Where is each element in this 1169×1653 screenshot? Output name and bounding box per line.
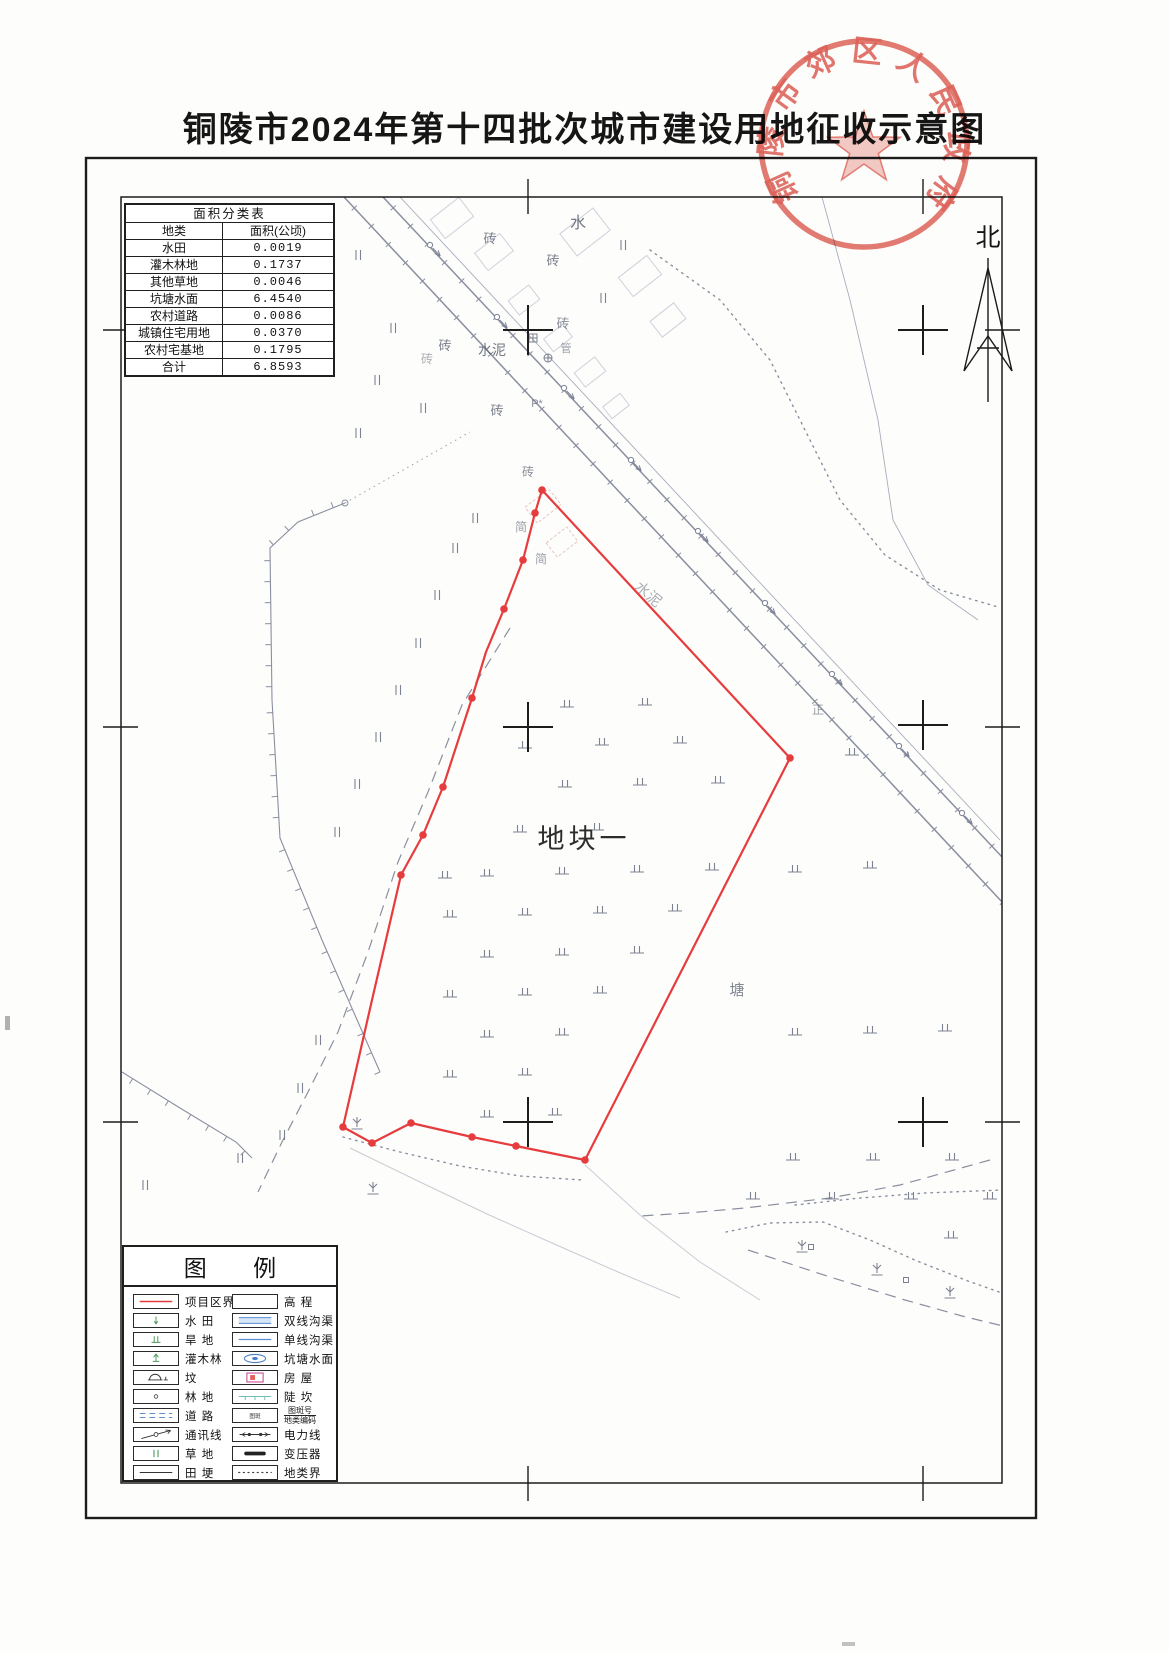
land-type-cell: 农村宅基地 — [125, 342, 223, 359]
legend-item-shrub: 灌木林 — [124, 1349, 230, 1368]
grass-symbol — [375, 375, 380, 385]
grass-symbol — [621, 240, 626, 250]
grid-cross — [503, 305, 553, 355]
boundary-vertex-dot — [419, 831, 427, 839]
legend-item-road: 道 路 — [124, 1406, 230, 1425]
area-value-cell: 6.8593 — [223, 359, 335, 377]
area-value-cell: 0.0019 — [223, 240, 335, 257]
boundary-vertex-dot — [468, 694, 476, 702]
dryland-symbol — [866, 1153, 880, 1160]
power-line-glyph — [695, 528, 708, 542]
power-line-icon — [233, 1428, 277, 1441]
shrub-symbol — [945, 1286, 956, 1298]
dryland-symbol — [560, 700, 574, 707]
paddy-icon — [134, 1314, 178, 1327]
legend-item-transformer: 变压器 — [230, 1444, 336, 1463]
grid-cross — [898, 305, 948, 355]
dryland-symbol — [845, 748, 859, 755]
legend-symbol-box: 图斑 — [232, 1408, 278, 1423]
grass-symbol — [421, 403, 426, 413]
map-line — [343, 1137, 583, 1180]
grave-icon — [134, 1371, 178, 1384]
dryland-symbol — [944, 1231, 958, 1238]
dryland-symbol — [633, 778, 647, 785]
legend-symbol-box — [232, 1351, 278, 1366]
double-ditch-icon — [233, 1314, 277, 1327]
legend-symbol-box — [133, 1427, 179, 1442]
building-outline — [508, 285, 540, 315]
shrub-symbol — [797, 1240, 808, 1252]
area-value-cell: 6.4540 — [223, 291, 335, 308]
boundary-vertex-dot — [339, 1123, 347, 1131]
map-label: 管 — [561, 341, 572, 355]
legend-item-label: 图斑号地类编码 — [284, 1406, 316, 1425]
dryland-symbol — [668, 904, 682, 911]
map-line — [350, 1148, 680, 1298]
ridge-icon — [134, 1466, 178, 1479]
legend-item-label: 灌木林 — [185, 1351, 223, 1367]
legend-symbol-box — [133, 1446, 179, 1461]
dryland-symbol — [518, 741, 532, 748]
area-table-row: 坑塘水面6.4540 — [125, 291, 334, 308]
map-label: 砖 — [546, 253, 559, 268]
power-line-glyph — [561, 385, 574, 399]
legend-symbol-box — [232, 1427, 278, 1442]
grid-cross — [898, 700, 948, 750]
legend-symbol-box — [133, 1351, 179, 1366]
dryland-symbol — [863, 1026, 877, 1033]
legend-item-label: 田 埂 — [185, 1465, 214, 1481]
legend-symbol-box — [133, 1389, 179, 1404]
map-line — [748, 1250, 1003, 1326]
scarp-icon — [233, 1390, 277, 1403]
grid-cross — [503, 702, 553, 752]
boundary-vertex-dot — [581, 1156, 589, 1164]
grass-symbol — [355, 779, 360, 789]
boundary-icon — [233, 1466, 277, 1479]
map-label: 砖 — [490, 403, 503, 418]
legend-symbol-box — [133, 1370, 179, 1385]
single-ditch-icon — [233, 1333, 277, 1346]
grass-symbol — [396, 685, 401, 695]
grass-symbol — [376, 732, 381, 742]
spot-number-icon: 图斑 — [233, 1409, 277, 1422]
dryland-symbol — [555, 867, 569, 874]
legend-symbol-box — [232, 1389, 278, 1404]
dryland-symbol — [788, 865, 802, 872]
land-type-cell: 城镇住宅用地 — [125, 325, 223, 342]
map-line — [795, 1190, 1002, 1205]
seal-star — [828, 111, 900, 180]
dryland-symbol — [480, 1110, 494, 1117]
map-label: 砖 — [522, 464, 534, 479]
legend-item-label: 坟 — [185, 1370, 198, 1386]
transformer-icon — [233, 1447, 277, 1460]
legend-item-label: 道 路 — [185, 1408, 214, 1424]
forest-icon — [134, 1390, 178, 1403]
legend-item-label: 通讯线 — [185, 1427, 223, 1443]
legend-item-label: 双线沟渠 — [284, 1313, 334, 1329]
area-table-row: 农村道路0.0086 — [125, 308, 334, 325]
power-line-glyph — [494, 314, 507, 328]
dryland-symbol — [673, 736, 687, 743]
legend-item-boundary: 地类界 — [230, 1463, 336, 1482]
dryland-symbol — [593, 906, 607, 913]
grass-symbol — [435, 590, 440, 600]
dryland-icon — [134, 1333, 178, 1346]
house-icon — [233, 1371, 277, 1384]
dryland-symbol — [945, 1153, 959, 1160]
grass-symbol — [416, 638, 421, 648]
pond-icon — [233, 1352, 277, 1365]
power-line-glyph — [896, 743, 909, 757]
dryland-symbol — [638, 698, 652, 705]
legend-item-single-ditch: 单线沟渠 — [230, 1330, 336, 1349]
legend-item-power-line: 电力线 — [230, 1425, 336, 1444]
area-value-cell: 0.1737 — [223, 257, 335, 274]
grass-symbol — [356, 428, 361, 438]
legend-box: 图 例 项目区界线水 田旱 地灌木林坟林 地道 路通讯线草 地田 埂 高 程双线… — [122, 1245, 338, 1482]
power-line-glyph — [829, 671, 842, 685]
grid-cross — [898, 1097, 948, 1147]
area-value-cell: 0.0046 — [223, 274, 335, 291]
legend-title: 图 例 — [124, 1247, 336, 1287]
legend-item-grass: 草 地 — [124, 1444, 230, 1463]
dryland-symbol — [438, 871, 452, 878]
legend-item-label: 草 地 — [185, 1446, 214, 1462]
dryland-symbol — [480, 869, 494, 876]
map-line — [640, 1160, 990, 1216]
legend-item-label: 单线沟渠 — [284, 1332, 334, 1348]
boundary-vertex-dot — [786, 754, 794, 762]
map-label: 砖 — [438, 338, 451, 353]
shrub-icon — [134, 1352, 178, 1365]
area-value-cell: 0.0086 — [223, 308, 335, 325]
elevation-icon — [233, 1295, 277, 1308]
dryland-symbol — [558, 780, 572, 787]
area-table-body: 面积分类表地类面积(公顷)水田0.0019灌木林地0.1737其他草地0.004… — [125, 204, 334, 376]
shrub-symbol — [352, 1117, 363, 1129]
dryland-symbol — [593, 986, 607, 993]
legend-symbol-box — [133, 1313, 179, 1328]
dryland-symbol — [786, 1153, 800, 1160]
shrub-symbol — [872, 1263, 883, 1275]
dryland-symbol — [518, 988, 532, 995]
boundary-vertex-dot — [519, 556, 527, 564]
dryland-symbol — [518, 908, 532, 915]
dryland-symbol — [630, 865, 644, 872]
boundary-vertex-dot — [397, 871, 405, 879]
boundary-vertex-dot — [500, 605, 508, 613]
map-line — [585, 1165, 760, 1300]
dryland-symbol — [443, 990, 457, 997]
legend-symbol-box — [133, 1465, 179, 1480]
road-icon — [134, 1409, 178, 1422]
grid-cross — [503, 1097, 553, 1147]
legend-item-label: 陡 坎 — [284, 1389, 313, 1405]
area-table-row: 其他草地0.0046 — [125, 274, 334, 291]
legend-item-label: 水 田 — [185, 1313, 214, 1329]
area-table-row: 城镇住宅用地0.0370 — [125, 325, 334, 342]
legend-symbol-box — [133, 1408, 179, 1423]
area-table-row: 合计6.8593 — [125, 359, 334, 377]
land-type-cell: 坑塘水面 — [125, 291, 223, 308]
map-line — [345, 432, 470, 503]
power-line-glyph — [762, 600, 775, 614]
legend-item-house: 房 屋 — [230, 1368, 336, 1387]
power-line-glyph — [427, 242, 440, 256]
area-table-row: 水田0.0019 — [125, 240, 334, 257]
grass-symbol — [316, 1035, 321, 1045]
dryland-symbol — [983, 1192, 997, 1199]
dryland-symbol — [746, 1192, 760, 1199]
map-line — [726, 1222, 1002, 1293]
legend-item-dryland: 旱 地 — [124, 1330, 230, 1349]
legend-symbol-box — [232, 1465, 278, 1480]
area-table: 面积分类表地类面积(公顷)水田0.0019灌木林地0.1737其他草地0.004… — [124, 203, 335, 377]
dryland-symbol — [904, 1192, 918, 1199]
area-table-row: 灌木林地0.1737 — [125, 257, 334, 274]
dryland-symbol — [443, 910, 457, 917]
dryland-symbol — [630, 946, 644, 953]
building-outline — [618, 255, 661, 296]
plot-label: 地块一 — [538, 824, 631, 854]
map-label: 砖 — [421, 351, 433, 366]
legend-symbol-box — [232, 1332, 278, 1347]
legend-symbol-box — [232, 1370, 278, 1385]
boundary-vertex-dot — [512, 1142, 520, 1150]
legend-item-label: 变压器 — [284, 1446, 322, 1462]
project-boundary-icon — [134, 1295, 178, 1308]
square-symbol — [809, 1245, 814, 1250]
map-line — [122, 1072, 252, 1158]
dryland-symbol — [555, 1028, 569, 1035]
legend-item-label: 地类界 — [284, 1465, 322, 1481]
area-table-header: 面积(公顷) — [223, 223, 335, 240]
grass-symbol — [601, 293, 606, 303]
legend-item-label: 林 地 — [185, 1389, 214, 1405]
dryland-symbol — [863, 861, 877, 868]
grass-icon — [134, 1447, 178, 1460]
land-type-cell: 水田 — [125, 240, 223, 257]
map-line — [383, 197, 1003, 858]
map-label: 正 — [812, 703, 824, 717]
dryland-symbol — [705, 863, 719, 870]
legend-symbol-box — [232, 1294, 278, 1309]
legend-symbol-box — [232, 1313, 278, 1328]
legend-item-label: 高 程 — [284, 1294, 313, 1310]
map-line — [650, 250, 998, 607]
dryland-symbol — [938, 1024, 952, 1031]
boundary-vertex-dot — [538, 486, 546, 494]
legend-item-double-ditch: 双线沟渠 — [230, 1311, 336, 1330]
dryland-symbol — [518, 1068, 532, 1075]
legend-item-label: 坑塘水面 — [284, 1351, 334, 1367]
legend-right-column: 高 程双线沟渠单线沟渠坑塘水面房 屋陡 坎图斑图斑号地类编码电力线变压器地类界 — [230, 1292, 336, 1482]
dryland-symbol — [711, 776, 725, 783]
building-outline — [430, 197, 473, 238]
map-label: 塘 — [729, 982, 744, 999]
land-type-cell: 农村道路 — [125, 308, 223, 325]
building-outline — [650, 303, 686, 337]
map-label: 简 — [515, 520, 527, 534]
map-label: 简 — [535, 552, 547, 566]
power-line-glyph — [628, 457, 641, 471]
legend-item-label: 旱 地 — [185, 1332, 214, 1348]
area-table-row: 农村宅基地0.1795 — [125, 342, 334, 359]
map-label: 水 — [570, 214, 586, 232]
legend-item-label: 电力线 — [284, 1427, 322, 1443]
power-line-glyph — [959, 810, 972, 824]
shed-outline — [546, 527, 578, 557]
map-line — [270, 503, 380, 1072]
legend-symbol-box — [133, 1294, 179, 1309]
legend-item-telecom: 通讯线 — [124, 1425, 230, 1444]
grass-symbol — [298, 1083, 303, 1093]
land-type-cell: 其他草地 — [125, 274, 223, 291]
legend-item-elevation: 高 程 — [230, 1292, 336, 1311]
map-label: 水泥 — [478, 342, 506, 358]
legend-item-pond: 坑塘水面 — [230, 1349, 336, 1368]
grass-symbol — [143, 1180, 148, 1190]
telecom-icon — [134, 1428, 178, 1441]
legend-symbol-box — [133, 1332, 179, 1347]
legend-item-forest: 林 地 — [124, 1387, 230, 1406]
area-value-cell: 0.1795 — [223, 342, 335, 359]
dryland-symbol — [788, 1028, 802, 1035]
scan-artifact — [842, 1642, 855, 1646]
area-table-header: 地类 — [125, 223, 223, 240]
grass-symbol — [335, 827, 340, 837]
area-value-cell: 0.0370 — [223, 325, 335, 342]
building-outline — [574, 357, 606, 387]
map-line — [822, 197, 978, 620]
dryland-symbol — [443, 1070, 457, 1077]
dryland-symbol — [548, 1108, 562, 1115]
government-seal: 铜陵市郊区人民政府 — [748, 28, 980, 260]
grass-symbol — [453, 543, 458, 553]
boundary-vertex-dot — [468, 1133, 476, 1141]
boundary-vertex-dot — [531, 509, 539, 517]
crossed-circle-symbol — [544, 354, 552, 362]
dryland-symbol — [555, 948, 569, 955]
grass-symbol — [473, 513, 478, 523]
boundary-vertex-dot — [368, 1139, 376, 1147]
boundary-vertex-dot — [439, 783, 447, 791]
map-label: 砖 — [556, 316, 569, 331]
land-type-cell: 合计 — [125, 359, 223, 377]
map-line — [258, 628, 510, 1192]
legend-item-grave: 坟 — [124, 1368, 230, 1387]
boundary-vertex-dot — [407, 1119, 415, 1127]
grass-symbol — [391, 323, 396, 333]
dryland-symbol — [480, 950, 494, 957]
grass-symbol — [356, 250, 361, 260]
dryland-symbol — [595, 738, 609, 745]
legend-item-paddy: 水 田 — [124, 1311, 230, 1330]
map-label: 砖 — [483, 231, 496, 246]
legend-item-project-boundary: 项目区界线 — [124, 1292, 230, 1311]
dryland-symbol — [480, 1030, 494, 1037]
legend-item-label: 房 屋 — [284, 1370, 313, 1386]
legend-body: 项目区界线水 田旱 地灌木林坟林 地道 路通讯线草 地田 埂 高 程双线沟渠单线… — [124, 1287, 336, 1482]
legend-symbol-box — [232, 1446, 278, 1461]
legend-item-scarp: 陡 坎 — [230, 1387, 336, 1406]
legend-item-spot-number: 图斑图斑号地类编码 — [230, 1406, 336, 1425]
map-line — [400, 197, 1000, 840]
dryland-symbol — [513, 825, 527, 832]
legend-item-ridge: 田 埂 — [124, 1463, 230, 1482]
land-type-cell: 灌木林地 — [125, 257, 223, 274]
legend-left-column: 项目区界线水 田旱 地灌木林坟林 地道 路通讯线草 地田 埂 — [124, 1292, 230, 1482]
document-page: 铜陵市2024年第十四批次城市建设用地征收示意图 水砖砖砖砖砖砖水泥管P*砖简简… — [0, 0, 1169, 1653]
square-symbol — [904, 1278, 909, 1283]
scan-artifact — [5, 1016, 10, 1030]
map-label: P* — [531, 398, 543, 410]
svg-text:图斑: 图斑 — [249, 1412, 261, 1420]
area-table-title: 面积分类表 — [125, 204, 334, 223]
crossed-square-symbol — [529, 334, 537, 342]
shrub-symbol — [368, 1182, 379, 1194]
building-outline — [603, 393, 630, 418]
